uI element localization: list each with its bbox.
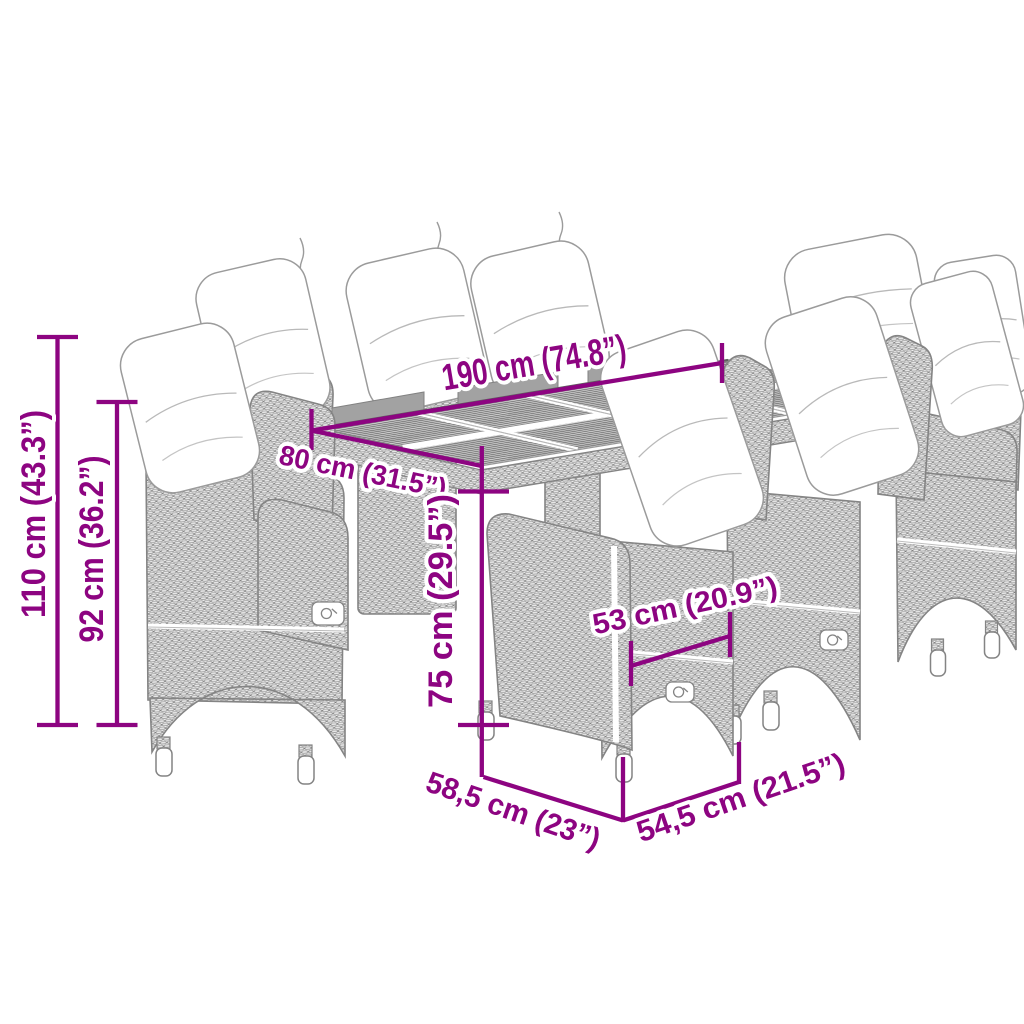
svg-text:75 cm (29.5”): 75 cm (29.5”): [422, 494, 460, 708]
svg-text:110 cm (43.3”): 110 cm (43.3”): [15, 410, 53, 618]
svg-text:92 cm (36.2”): 92 cm (36.2”): [73, 456, 111, 643]
